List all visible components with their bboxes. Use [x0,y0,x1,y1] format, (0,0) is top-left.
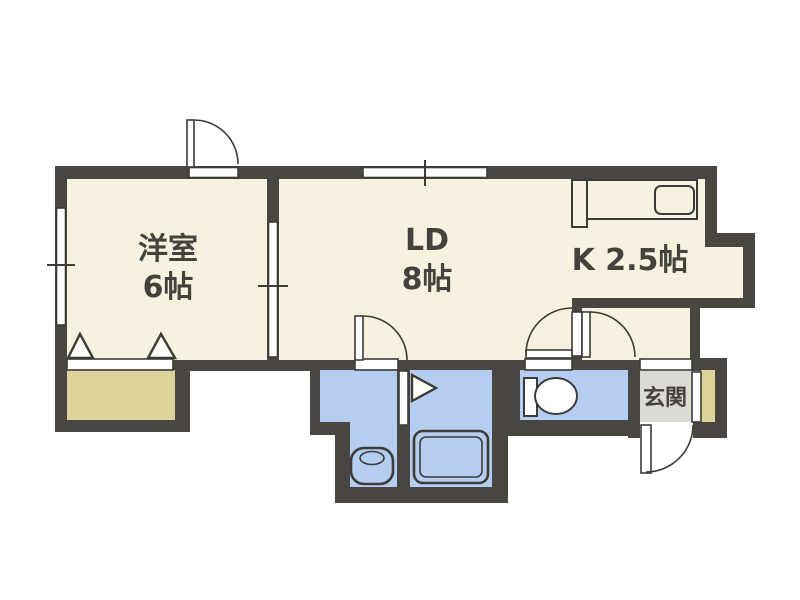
western-room-size: 6帖 [143,270,194,305]
top-door-sill [189,168,238,178]
balcony-bottom-wall [55,420,190,432]
entrance-door-leaf [641,425,651,473]
wet-block-bottom-wall [335,487,508,503]
bathtub [414,431,488,483]
toilet-door-opening [525,359,572,370]
western-ld-sliding-door [269,222,278,357]
bath-door-opening [399,371,408,425]
hallway-door-opening [572,312,582,356]
western-left-window [57,208,66,325]
living-dining-size: 8帖 [402,262,453,297]
hallway-floor [582,308,690,360]
kitchen-counter-compartment [572,180,587,227]
hallway-right-wall [690,308,700,360]
entrance-right-wall [715,358,727,438]
washroom-floor-upper [320,370,397,422]
hallway-door-leaf [582,312,590,357]
living-dining-label: LD [405,223,449,258]
balcony-floor [67,370,175,420]
kitchen-nook-floor [700,247,743,298]
entrance-left-wall [628,358,640,438]
kitchen-right-wall-upper [705,166,717,236]
washbasin [351,448,393,484]
washroom-door-leaf [355,316,363,360]
entrance-side-band [692,372,701,422]
kitchen-sink [655,186,694,214]
toilet-door-leaf [526,350,572,358]
kitchen-label: K 2.5帖 [572,243,689,278]
floorplan-canvas: 洋室 6帖 LD 8帖 K 2.5帖 玄関 [0,0,800,600]
western-room-label: 洋室 [138,232,198,267]
floorplan-svg: 洋室 6帖 LD 8帖 K 2.5帖 玄関 [0,0,800,600]
toilet-bottom-wall [508,420,640,436]
entrance-door-arc [646,425,693,472]
bath-right-wall [492,358,508,503]
entrance-label: 玄関 [643,385,687,411]
balcony-window [67,359,173,370]
entrance-step-strip [701,370,715,422]
top-door-leaf [187,120,194,167]
top-door-arc [194,120,238,164]
entrance-step-edge [640,359,692,370]
kitchen-step-wall [705,233,755,247]
toilet-bowl [535,378,577,414]
kitchen-bottom-wall [572,298,755,308]
